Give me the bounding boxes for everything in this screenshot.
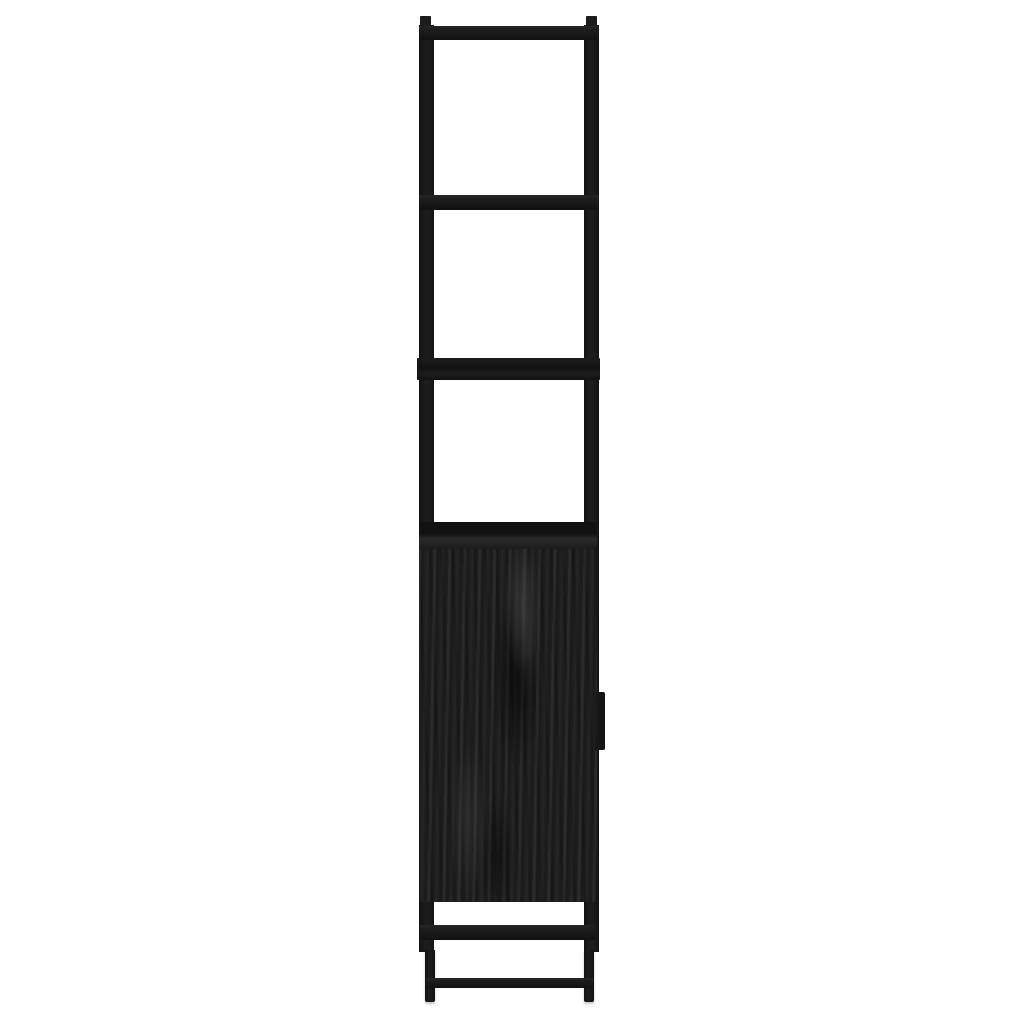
cabinet-top-edge bbox=[419, 522, 597, 549]
leg-left bbox=[425, 950, 435, 1002]
shelf-edge-middle bbox=[417, 358, 600, 380]
frame-rail-bottom bbox=[426, 978, 593, 988]
frame-rail-under-cabinet bbox=[420, 925, 595, 940]
frame-rail-top bbox=[419, 26, 599, 40]
door-handle bbox=[595, 692, 605, 750]
product-photo-canvas bbox=[0, 0, 1024, 1024]
leg-right bbox=[584, 950, 594, 1002]
cabinet-side-panel bbox=[419, 522, 597, 902]
shelf-edge-upper bbox=[419, 195, 599, 210]
